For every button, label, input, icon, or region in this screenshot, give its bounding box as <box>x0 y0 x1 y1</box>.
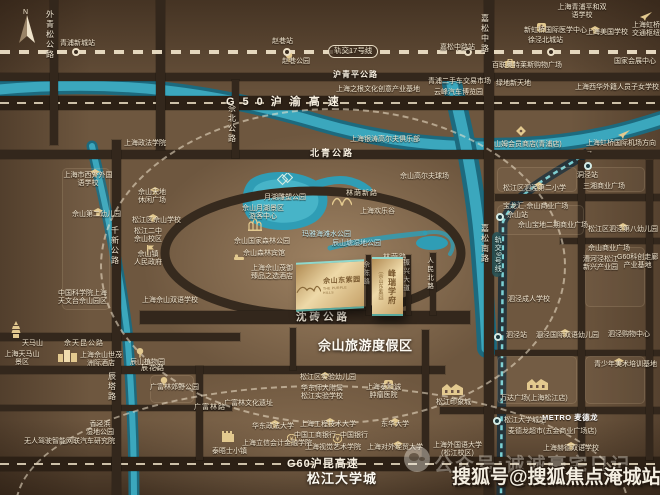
map-label: 佘山商业广场 <box>588 245 630 253</box>
map-label: G50沪渝高速 <box>226 96 347 109</box>
map-label: 宝龙汇·佘山商业广场 <box>503 203 568 211</box>
metro-station-label: 赵巷站 <box>272 38 293 46</box>
metro-station <box>496 213 504 221</box>
map-label: 上海市西外外国语学校 <box>62 172 114 189</box>
map-label: 千新公路 <box>110 226 119 266</box>
road <box>0 73 660 81</box>
sculpture-diamonds-icon <box>277 173 293 192</box>
metro-station-label: 松江大学城站 <box>504 417 546 425</box>
map-label: 百联奥特莱斯购物广场 <box>492 62 562 70</box>
map-label: 上海银涛高尔夫俱乐部 <box>350 136 420 144</box>
map-label: 上海立信会计金融学院 <box>242 440 312 448</box>
map-label: 上海青浦平和双语学校 <box>556 4 608 21</box>
map-label: G60科创走廊 产业基地 <box>617 254 658 271</box>
map-label: 嘉松南路 <box>480 224 489 264</box>
map-label: 国家会展中心 <box>614 58 656 66</box>
map-label: 辰山塘湿地公园 <box>332 240 381 248</box>
map-label: 辰花路 <box>141 365 165 373</box>
map-label: 佘山宝地二期商业广场 <box>518 222 588 230</box>
metro-station-label: 徐泾北城站 <box>528 37 563 45</box>
map-label: 辰塔路 <box>107 372 116 402</box>
sheshan-location-map: ¥¥ 上海青浦平和双语学校新虹桥国际医学中心上海美国学校上海虹桥 交通枢纽国家会… <box>0 0 660 495</box>
map-label: 上海泰和诚 肿瘤医院 <box>366 384 401 401</box>
map-label: 佘山镇 人民政府 <box>134 251 162 268</box>
metro-station-label: 洞泾站 <box>577 172 598 180</box>
metro-station <box>547 48 555 56</box>
road <box>646 160 653 460</box>
map-label: 佘天昆公路 <box>64 340 104 348</box>
map-label: 华东师大附属 松江实验学校 <box>301 385 343 402</box>
sam-diamond-icon <box>515 124 527 142</box>
sister-project-parent-name: (佘山东紫园) <box>378 272 385 300</box>
pagoda-icon <box>10 321 22 344</box>
metro-station <box>72 48 80 56</box>
map-label: 中国科学院上海 天文台佘山园区 <box>58 290 107 307</box>
map-label: 佘山高尔夫球场 <box>400 173 449 181</box>
map-label: 松江区泗泾第二小学 <box>503 185 566 193</box>
map-label: 林荫新路 <box>346 190 378 198</box>
sister-project-card: (佘山东紫园) 峰瑞学府 <box>372 257 403 316</box>
metro-station-label: 佘山站 <box>507 212 528 220</box>
metro-line9-badge: 轨交9号线 <box>492 232 502 277</box>
map-label: 佘北公路 <box>227 104 236 144</box>
road <box>156 0 165 150</box>
map-label: 嘉松中路 <box>480 14 489 54</box>
map-label: 泗泾成人学校 <box>508 296 550 304</box>
map-label: 绿地新天地 <box>496 80 531 88</box>
map-label: 佘山第二幼儿园 <box>72 211 121 219</box>
map-label: 泰晤士小镇 <box>212 448 247 456</box>
map-label: 泗泾国际双语幼儿园 <box>536 332 599 340</box>
map-label: 松江二中 佘山校区 <box>134 228 162 245</box>
map-label: 玛雅海滩水公园 <box>302 231 351 239</box>
map-label: 天马山 <box>22 340 43 348</box>
map-label: 上海对外经贸大学 <box>367 444 423 452</box>
map-label: 上海之根文化创意产业基地 <box>336 86 420 94</box>
map-label: 青浦二手车交易市场 <box>428 78 491 86</box>
map-label: 松江区实验幼儿园 <box>300 374 356 382</box>
map-label: 中国工商银行 <box>294 432 336 440</box>
map-label: 青少年美术培训基地 <box>594 361 657 369</box>
map-label: 三湘商业广场 <box>583 183 625 191</box>
project-card-title: 佘山东紫园 <box>323 274 364 286</box>
road <box>560 238 660 244</box>
metro-station-label: 青浦新城站 <box>60 40 95 48</box>
map-label: 佘山旅游度假区 <box>318 338 413 353</box>
map-label: 麦德龙超市(五金商业广场店) <box>508 428 597 436</box>
map-label: 上海外国语大学 (松江校区) <box>433 442 482 459</box>
metro-line17-badge: 轨交17号线 <box>328 45 378 58</box>
map-label: 上海赫德双语学校 <box>543 445 599 453</box>
map-label: 无人驾驶智能网联汽车研究院 <box>24 438 115 446</box>
map-label: 人民北路 <box>425 257 433 291</box>
map-label: 泗泾购物中心 <box>608 331 650 339</box>
map-label: 佘山天地 休闲广场 <box>138 189 166 206</box>
map-label: 松江印象城 <box>436 399 471 407</box>
map-label: 上海政法学院 <box>124 140 166 148</box>
map-label: 上海视觉艺术学院 <box>305 444 361 452</box>
map-label: 上海西华外籍人员子女学校 <box>575 84 659 92</box>
map-label: 万达广场(上海松江店) <box>500 395 568 403</box>
map-label: 月湖雕塑公园 <box>264 194 306 202</box>
map-label: 东华大学 <box>381 421 409 429</box>
metro-station-label: 泗泾站 <box>506 332 527 340</box>
map-label: 北青公路 <box>310 148 354 159</box>
mountain-logo-icon <box>296 278 321 295</box>
map-label: 松江大学城 <box>307 471 377 486</box>
map-label: 佘山国家森林公园 <box>234 238 290 246</box>
map-label: 上海虹桥国际机场方向 → <box>586 140 660 157</box>
map-label: 香泾浜 湿地公园 <box>86 421 114 438</box>
mall-icon <box>527 378 549 396</box>
map-label: 上海天马山景区 <box>2 351 42 368</box>
map-label: 沪青平公路 <box>333 70 378 79</box>
map-label: 上海佘山茂御 臻品之选酒店 <box>251 265 293 282</box>
map-label: 广富林文化遗址 <box>224 400 273 408</box>
map-label: 上海佘山双语学校 <box>142 297 198 305</box>
map-label: 华东政法大学 <box>252 423 294 431</box>
map-label: 上海虹桥 交通枢纽 <box>632 22 660 39</box>
map-label: 云峰汽车博览园 <box>434 89 483 97</box>
map-label: 外青松公路 <box>45 10 54 60</box>
map-label: 赵巷公园 <box>282 58 310 66</box>
map-label: 山姆会员商店(青浦店) <box>494 141 562 149</box>
map-label: 松江区佘山学校 <box>132 217 181 225</box>
map-label: 上海工程技术大学 <box>300 421 356 429</box>
metro-station <box>494 333 502 341</box>
project-card: 佘山东紫园 THE PURPLE HILLS <box>296 259 364 312</box>
castle-icon <box>221 429 235 447</box>
map-label: G60沪昆高速 <box>287 458 359 471</box>
map-label: 上海佘山世茂 洲际酒店 <box>80 352 122 369</box>
metro-station <box>283 48 291 56</box>
metro-station <box>584 162 592 170</box>
map-label: METRO 麦德龙 <box>542 414 598 423</box>
sister-project-name: 峰瑞学府 <box>387 269 398 305</box>
map-label: 中国银行 <box>340 432 368 440</box>
map-label: 上海欢乐谷 <box>360 208 395 216</box>
map-label: 上海美国学校 <box>586 29 628 37</box>
project-card-subtitle: THE PURPLE HILLS <box>323 284 358 294</box>
hotel-icon <box>58 348 78 367</box>
map-label: 沈砖公路 <box>296 311 350 323</box>
map-label: 漕河泾松江 新兴产业园 <box>583 256 618 273</box>
compass-icon: N <box>10 11 44 49</box>
map-label: 广富林郊野公园 <box>150 384 199 392</box>
map-label: 广富林路 <box>194 404 226 412</box>
compass-north-letter: N <box>23 9 28 16</box>
map-label: 佘山森林宾馆 <box>243 250 285 258</box>
metro-station <box>493 417 501 425</box>
map-label: 佘山月湖景区 游客中心 <box>242 205 284 222</box>
metro-station-label: 嘉松中路站 <box>440 44 475 52</box>
map-label: 松江区泗泾第八幼儿园 <box>588 226 658 234</box>
map-label: 新虹桥国际医学中心 <box>524 27 587 35</box>
